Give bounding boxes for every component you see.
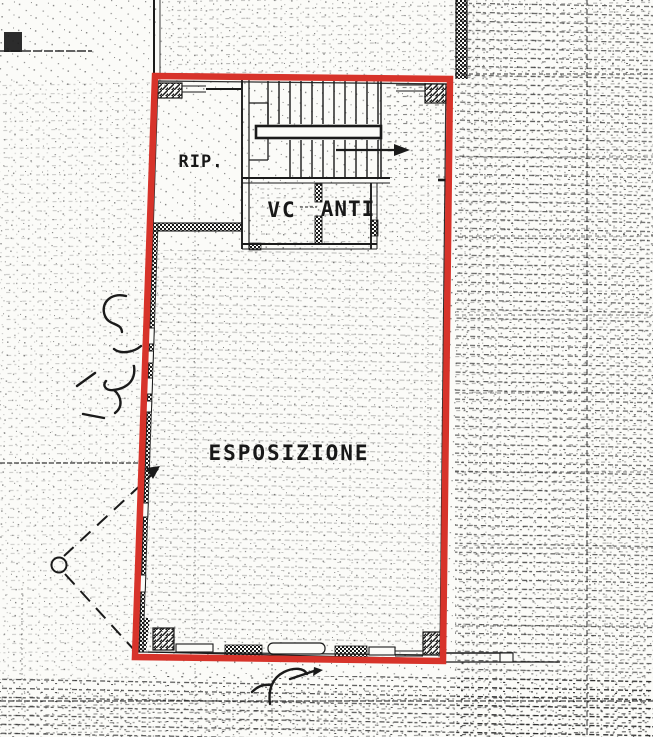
pillar-top-right [425,84,449,103]
floor-plan-scan: RIP. VC ANTI ESPOSIZIONE [0,0,653,737]
floor-plan-canvas: RIP. VC ANTI ESPOSIZIONE [0,0,653,737]
room-label-rip: RIP. [179,152,224,172]
room-label-vc: VC [267,198,296,222]
window [268,643,325,654]
stair-handrail [256,126,381,138]
room-label-esposizione: ESPOSIZIONE [208,441,369,465]
room-label-anti: ANTI [321,197,376,221]
pillar-top-left [158,83,182,98]
rip-room-wall [149,223,242,231]
hatched-wall-upper-right [456,0,467,79]
pillar-bottom-left [153,628,174,650]
window [176,644,213,652]
scan-artifact [4,32,22,52]
window [369,647,395,655]
